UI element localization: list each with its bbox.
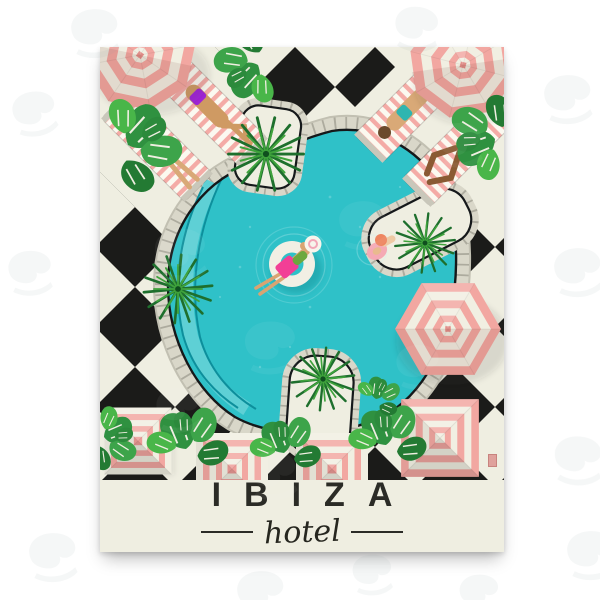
sun-hat [305, 236, 322, 253]
artist-seal [488, 454, 497, 467]
poster-canvas: IBIZA hotel [100, 47, 504, 552]
poster-subtitle-row: hotel [100, 515, 504, 549]
left-rule [201, 531, 253, 533]
poster-subtitle: hotel [263, 513, 341, 551]
poster-title: IBIZA [100, 477, 504, 513]
coral-swim-cap [375, 234, 387, 246]
right-rule [351, 531, 403, 533]
poster-caption: IBIZA hotel [100, 477, 504, 549]
